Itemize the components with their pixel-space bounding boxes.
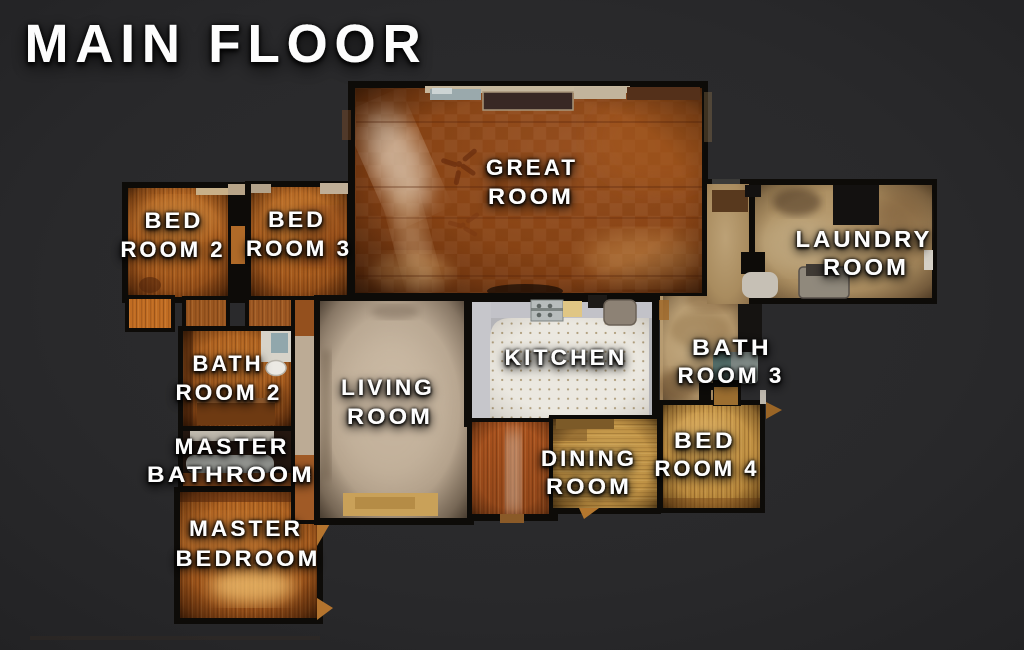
svg-text:ROOM 3: ROOM 3	[678, 363, 785, 388]
svg-text:ROOM: ROOM	[823, 254, 909, 280]
svg-text:ROOM 2: ROOM 2	[121, 237, 226, 262]
svg-text:ROOM 2: ROOM 2	[176, 380, 283, 405]
svg-text:ROOM 3: ROOM 3	[246, 236, 352, 261]
svg-text:MASTER: MASTER	[189, 516, 303, 541]
svg-text:LIVING: LIVING	[341, 375, 435, 400]
svg-text:LAUNDRY: LAUNDRY	[796, 226, 933, 252]
svg-text:BED: BED	[674, 428, 736, 453]
svg-text:MASTER: MASTER	[175, 434, 290, 459]
svg-text:BED: BED	[145, 208, 204, 233]
svg-text:ROOM: ROOM	[546, 474, 632, 499]
svg-text:BATH: BATH	[692, 335, 772, 360]
svg-text:ROOM: ROOM	[488, 184, 574, 209]
svg-text:ROOM: ROOM	[347, 404, 433, 429]
svg-text:GREAT: GREAT	[486, 155, 578, 180]
svg-text:BATH: BATH	[193, 351, 264, 376]
svg-text:KITCHEN: KITCHEN	[505, 345, 628, 370]
svg-text:DINING: DINING	[541, 446, 637, 471]
svg-text:MAIN FLOOR: MAIN FLOOR	[25, 14, 428, 74]
svg-text:BATHROOM: BATHROOM	[147, 462, 315, 487]
svg-text:ROOM 4: ROOM 4	[655, 456, 760, 481]
svg-text:BEDROOM: BEDROOM	[176, 546, 321, 571]
svg-text:BED: BED	[268, 207, 326, 232]
